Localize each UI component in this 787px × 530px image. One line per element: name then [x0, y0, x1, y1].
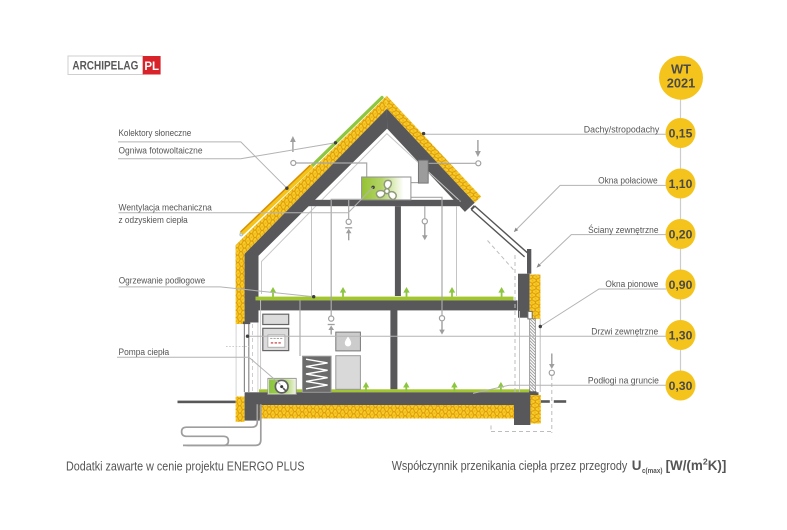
svg-text:Ogrzewanie podłogowe: Ogrzewanie podłogowe	[119, 275, 206, 286]
svg-text:c(max): c(max)	[642, 468, 663, 475]
svg-text:Podłogi na gruncie: Podłogi na gruncie	[588, 376, 659, 387]
svg-text:Współczynnik przenikania ciepł: Współczynnik przenikania ciepła przez pr…	[392, 459, 628, 473]
svg-text:WT: WT	[671, 62, 691, 77]
svg-text:Okna pionowe: Okna pionowe	[605, 279, 658, 290]
svg-text:[W/(m: [W/(m	[666, 458, 703, 473]
svg-text:K)]: K)]	[708, 458, 727, 473]
svg-text:Pompa ciepła: Pompa ciepła	[119, 347, 170, 358]
svg-text:z odzyskiem ciepła: z odzyskiem ciepła	[119, 215, 189, 226]
svg-text:Ściany zewnętrzne: Ściany zewnętrzne	[588, 224, 658, 236]
svg-text:Dachy/stropodachy: Dachy/stropodachy	[584, 124, 660, 135]
svg-text:Ogniwa fotowoltaiczne: Ogniwa fotowoltaiczne	[119, 146, 203, 157]
svg-text:1,10: 1,10	[669, 177, 693, 191]
svg-text:0,20: 0,20	[669, 227, 693, 241]
svg-text:0,15: 0,15	[669, 126, 693, 140]
svg-text:U: U	[632, 458, 642, 473]
svg-text:Dodatki zawarte w cenie projek: Dodatki zawarte w cenie projektu ENERGO …	[66, 458, 305, 473]
svg-text:Wentylacja mechaniczna: Wentylacja mechaniczna	[119, 202, 213, 213]
svg-text:ARCHIPELAG: ARCHIPELAG	[72, 59, 138, 73]
svg-text:2021: 2021	[667, 76, 695, 91]
svg-text:Okna połaciowe: Okna połaciowe	[598, 175, 658, 186]
svg-text:Kolektory słoneczne: Kolektory słoneczne	[119, 128, 192, 139]
svg-text:0,30: 0,30	[669, 379, 693, 393]
svg-text:0,90: 0,90	[669, 278, 693, 292]
svg-text:Drzwi zewnętrzne: Drzwi zewnętrzne	[591, 327, 658, 338]
svg-text:1,30: 1,30	[669, 328, 693, 342]
svg-text:PL: PL	[144, 61, 159, 73]
